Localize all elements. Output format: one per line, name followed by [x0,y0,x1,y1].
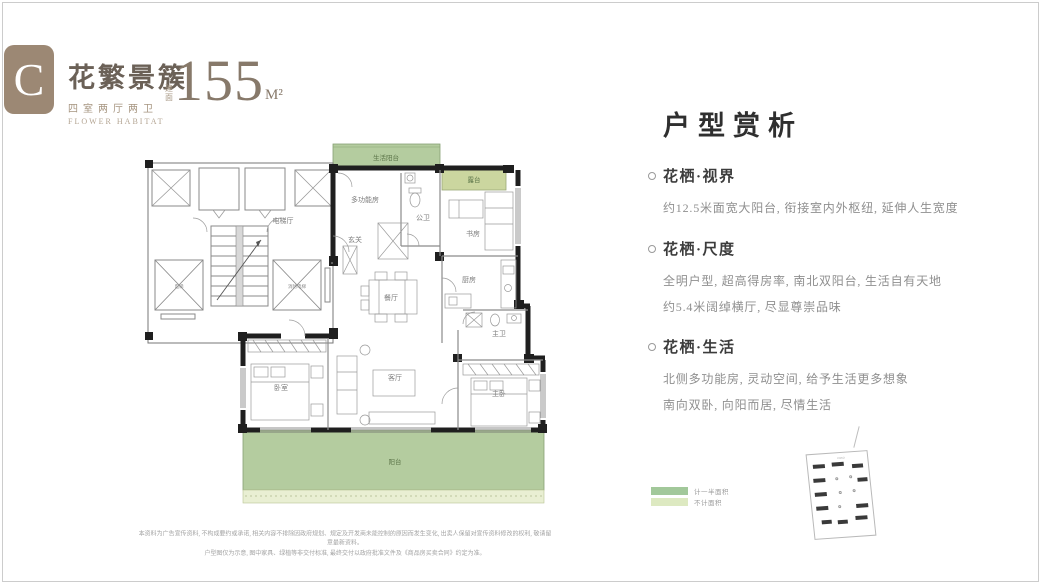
terrace-zone: 露台 [442,168,506,190]
disclaimer-line-1: 本资料为广告宣传资料, 不构成要约或承诺, 相关内容不排除因政府规划、规定及开发… [138,530,552,548]
room-label-dining: 餐厅 [384,293,398,302]
door-arcs [289,173,475,404]
analysis-heading: 户型赏析 [663,104,803,143]
disclaimer-line-2: 户型图仅为示意, 图中家具、绿植等非交付标准, 最终交付以政府批准文件及《商品房… [138,549,552,558]
hall-closet [343,223,408,274]
legend-swatch-half-area [651,487,688,495]
room-label-terrace: 露台 [468,175,481,184]
kitchen-fixtures [445,260,516,308]
room-label-elevator-hall: 电梯厅 [273,216,294,225]
south-balcony-zone: 阳台 [243,430,544,503]
page-canvas: C 花繁景簇 四室两厅两卫 FLOWER HABITAT 建面 155 M² 生… [0,0,1041,584]
legend-swatch-no-area [651,498,688,506]
analysis-section-life: 花栖·生活 北侧多功能房, 灵动空间, 给予生活更多想象 南向双卧, 向阳而居,… [648,336,1008,418]
section-line: 约12.5米面宽大阳台, 衔接室内外枢纽, 延伸人生宽度 [663,195,1008,221]
analysis-section-vision: 花栖·视界 约12.5米面宽大阳台, 衔接室内外枢纽, 延伸人生宽度 [648,165,1008,221]
interior-walls [328,170,543,430]
area-legend: 计一半面积 不计面积 [651,485,729,507]
badge-letter: C [14,53,45,106]
area-unit: M² [265,87,283,104]
public-bath-fixtures [405,173,421,207]
floorplan-drawing: 生活阳台 露台 阳台 [133,128,593,518]
area-block: 建面 155 M² [165,52,283,110]
key-plan-leader-line [853,426,859,448]
room-label-bedroom: 卧室 [274,383,288,392]
site-key-plan: ▭▭ [804,444,882,544]
section-title: 花栖·生活 [663,336,736,357]
room-label-foyer: 玄关 [348,235,362,244]
section-line: 全明户型, 超高得房率, 南北双阳台, 生活自有天地 [663,268,1008,294]
building-core: 电梯 消防电梯 [148,163,333,343]
legend-label: 计一半面积 [694,486,729,496]
unit-type-badge: C [4,45,54,114]
analysis-section-scale: 花栖·尺度 全明户型, 超高得房率, 南北双阳台, 生活自有天地 约5.4米阔绰… [648,238,1008,320]
room-label-living: 客厅 [388,373,402,382]
bedroom-furniture [248,340,326,420]
legend-row-half-area: 计一半面积 [651,485,729,496]
elevator-left [155,260,203,319]
bullet-circle-icon [648,172,656,180]
area-value: 155 [174,52,264,110]
study-fixtures [449,192,513,250]
room-label-elevator: 电梯 [175,283,184,290]
section-line: 约5.4米阔绰横厅, 尽显尊崇品味 [663,294,1008,320]
title-english: FLOWER HABITAT [68,117,188,126]
key-plan-box: ▭▭ [806,450,877,540]
section-title: 花栖·视界 [663,165,736,186]
section-line: 南向双卧, 向阳而居, 尽情生活 [663,392,1008,418]
room-label-master-bedroom: 主卧 [492,389,506,398]
wall-pillars [145,160,547,433]
room-label-balcony: 阳台 [389,457,402,466]
room-label-master-bath: 主卫 [492,329,506,338]
disclaimer: 本资料为广告宣传资料, 不构成要约或承诺, 相关内容不排除因政府规划、规定及开发… [120,529,570,559]
stairs [211,226,268,306]
bullet-circle-icon [648,343,656,351]
legend-row-no-area: 不计面积 [651,496,729,507]
section-line: 北侧多功能房, 灵动空间, 给予生活更多想象 [663,366,1008,392]
room-label-kitchen: 厨房 [462,275,476,284]
living-furniture [337,345,435,425]
section-title: 花栖·尺度 [663,238,736,259]
room-label-public-bath: 公卫 [416,214,430,222]
area-prefix-label: 建面 [165,84,174,102]
room-label-study: 书房 [466,229,480,238]
room-label-life-balcony: 生活阳台 [373,153,399,162]
master-bath-fixtures [466,313,521,327]
legend-label: 不计面积 [694,497,722,507]
room-label-fire-elevator: 消防电梯 [288,283,306,290]
room-label-multifunction: 多功能房 [351,195,379,204]
bullet-circle-icon [648,245,656,253]
